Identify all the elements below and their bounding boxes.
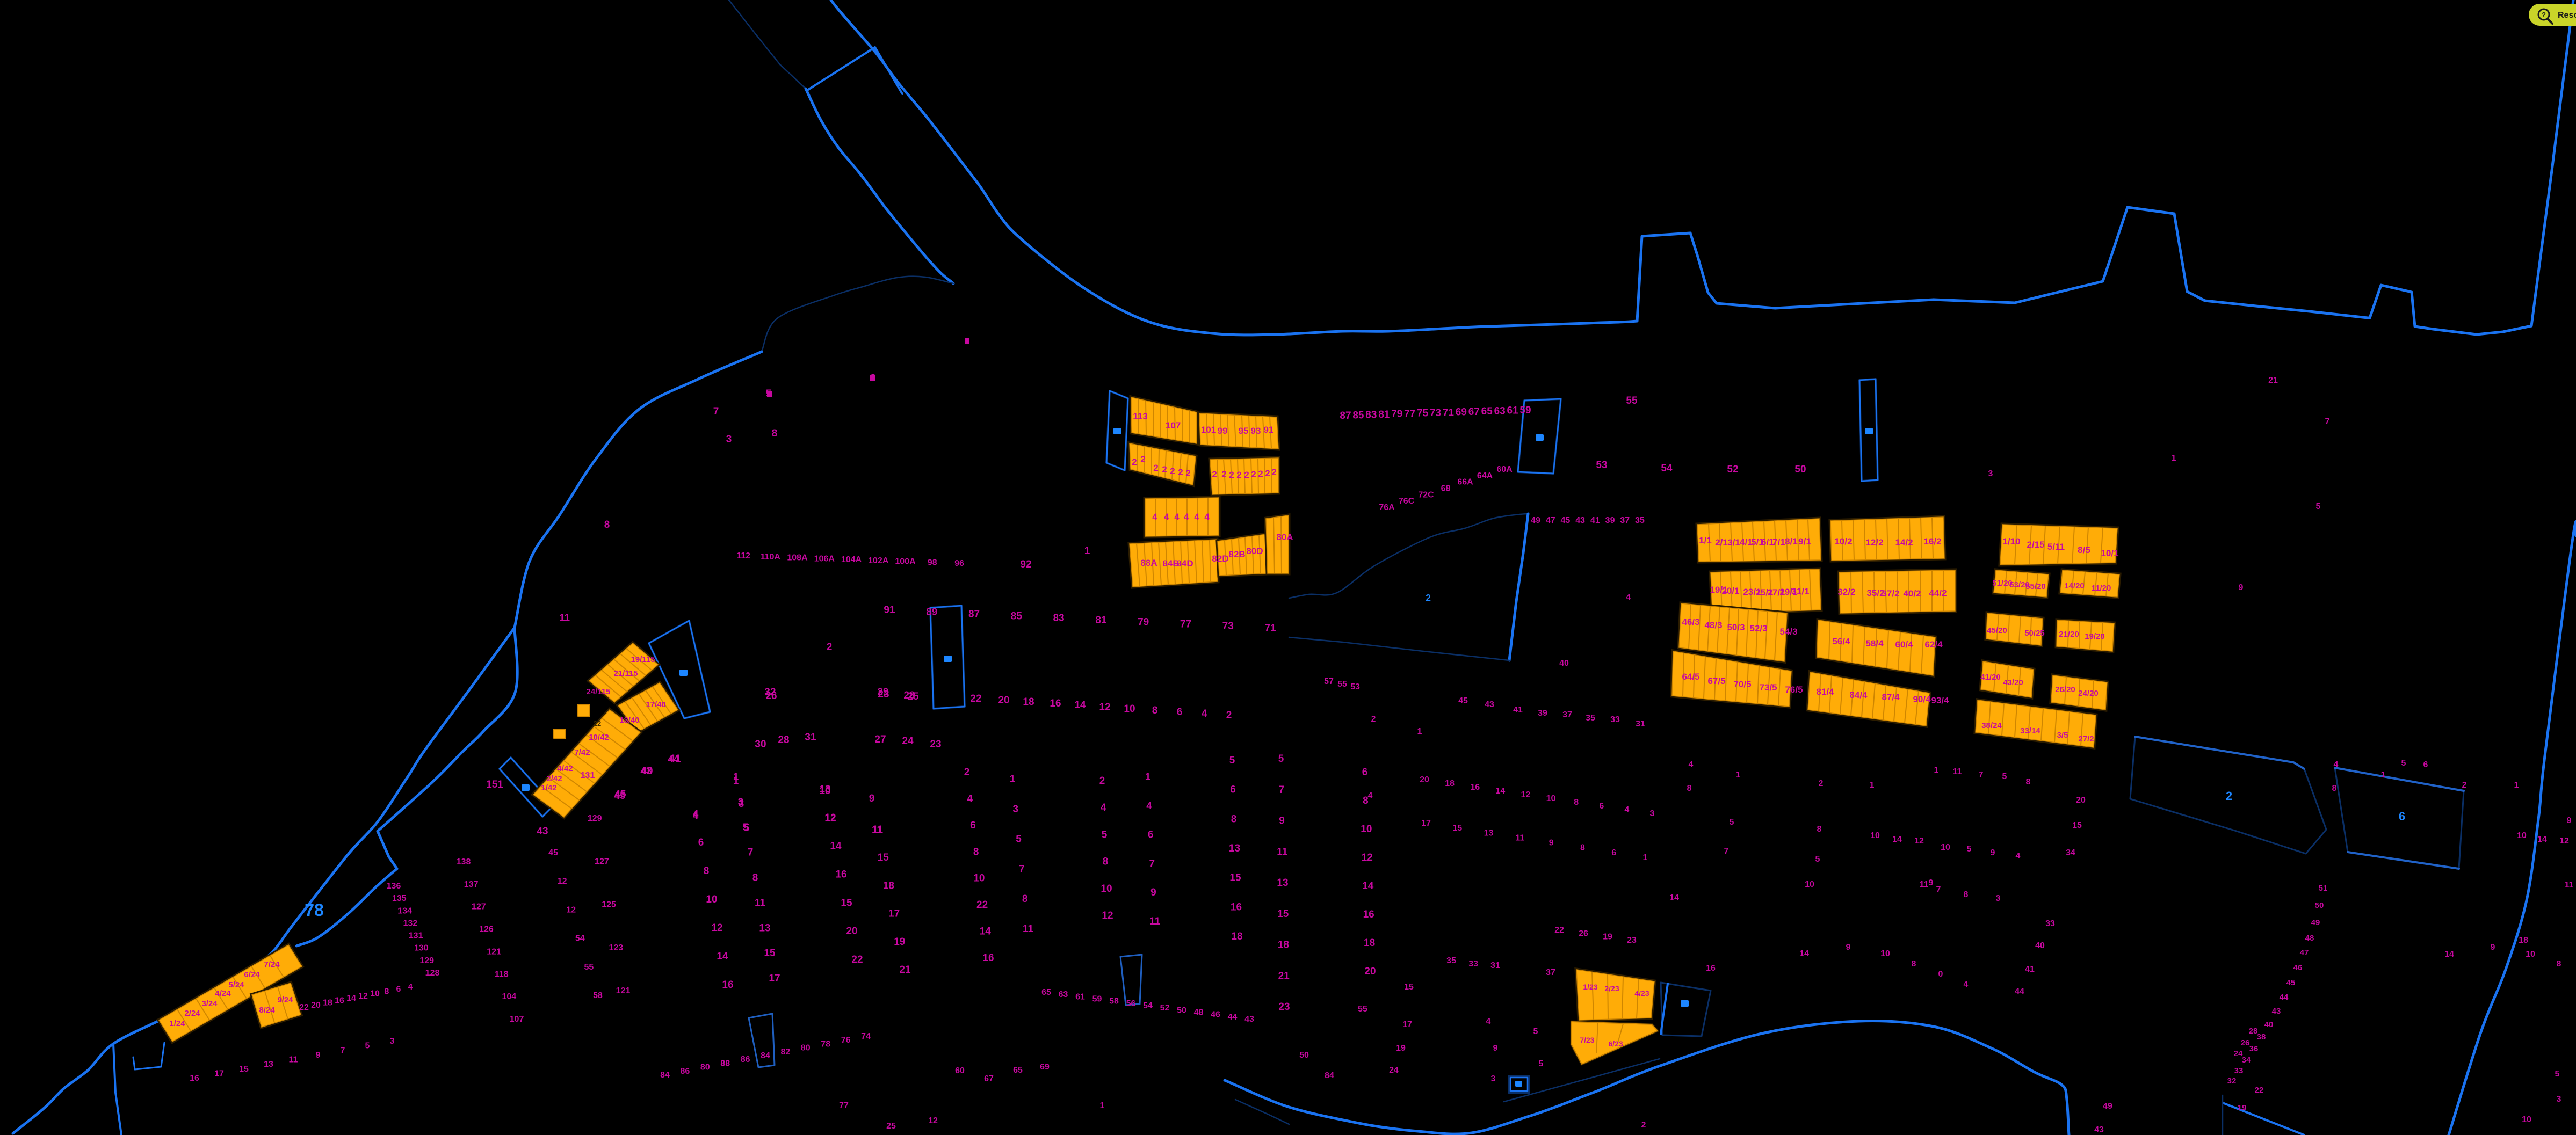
svg-text:9: 9 (2567, 816, 2572, 825)
svg-text:6: 6 (1148, 830, 1154, 841)
svg-text:4: 4 (1204, 512, 1210, 522)
svg-text:108A: 108A (787, 554, 808, 563)
svg-text:15: 15 (2072, 821, 2082, 830)
svg-text:6: 6 (1362, 767, 1368, 778)
svg-text:21/115: 21/115 (613, 669, 638, 678)
svg-text:5: 5 (2401, 759, 2406, 768)
svg-text:2: 2 (1099, 775, 1105, 787)
svg-text:6: 6 (1177, 707, 1183, 718)
svg-text:9: 9 (1929, 878, 1934, 887)
svg-text:15: 15 (1277, 908, 1289, 920)
svg-text:26: 26 (2241, 1038, 2250, 1047)
svg-text:32: 32 (2227, 1076, 2237, 1086)
svg-text:4: 4 (408, 983, 413, 992)
svg-text:31: 31 (1490, 961, 1500, 970)
svg-text:93/4: 93/4 (1931, 695, 1949, 705)
svg-text:6: 6 (396, 985, 401, 994)
svg-text:37: 37 (1620, 516, 1630, 525)
svg-text:68: 68 (1441, 484, 1451, 493)
svg-text:31: 31 (805, 732, 816, 743)
svg-text:5: 5 (2316, 502, 2321, 511)
svg-text:19: 19 (894, 936, 905, 948)
svg-text:8: 8 (2332, 784, 2337, 793)
svg-text:67/5: 67/5 (1707, 676, 1725, 686)
svg-text:13: 13 (1229, 843, 1240, 854)
svg-text:1: 1 (1417, 727, 1422, 736)
svg-text:7: 7 (1149, 858, 1155, 869)
svg-text:1: 1 (2172, 454, 2176, 463)
svg-text:4: 4 (1624, 805, 1629, 814)
svg-text:5: 5 (1229, 755, 1235, 766)
svg-text:88: 88 (720, 1059, 730, 1068)
svg-text:18: 18 (1445, 779, 1455, 788)
svg-text:12: 12 (1102, 910, 1113, 921)
svg-text:73/5: 73/5 (1759, 682, 1777, 693)
svg-text:83: 83 (1365, 410, 1377, 421)
svg-text:5: 5 (743, 822, 749, 833)
svg-text:17: 17 (888, 908, 900, 920)
svg-text:22: 22 (1554, 926, 1564, 935)
svg-text:11: 11 (289, 1056, 298, 1065)
svg-text:69: 69 (1456, 407, 1467, 418)
svg-text:75: 75 (1417, 408, 1429, 419)
svg-text:2: 2 (1185, 468, 1190, 478)
svg-text:10: 10 (370, 990, 380, 999)
svg-text:14: 14 (346, 994, 356, 1003)
svg-text:54: 54 (1143, 1001, 1153, 1010)
svg-text:67: 67 (1468, 406, 1480, 418)
svg-text:4/42: 4/42 (557, 764, 573, 773)
svg-text:7/1: 7/1 (1772, 537, 1785, 547)
svg-text:3: 3 (1650, 809, 1655, 818)
svg-text:8/5: 8/5 (2078, 545, 2090, 555)
svg-text:5: 5 (1539, 1059, 1544, 1068)
svg-text:14: 14 (1799, 949, 1809, 958)
svg-text:22: 22 (594, 719, 601, 727)
svg-text:51: 51 (2319, 884, 2328, 893)
svg-text:33: 33 (2045, 919, 2055, 928)
svg-text:26: 26 (765, 690, 777, 702)
svg-text:151: 151 (486, 779, 503, 790)
svg-text:46/3: 46/3 (1682, 617, 1699, 627)
svg-text:8: 8 (1152, 705, 1158, 716)
svg-text:73: 73 (1222, 621, 1234, 632)
svg-text:78: 78 (821, 1039, 830, 1049)
svg-text:4: 4 (1164, 512, 1169, 522)
svg-text:3/5: 3/5 (2057, 731, 2068, 740)
svg-text:4: 4 (1146, 801, 1152, 812)
svg-text:132: 132 (403, 919, 418, 928)
svg-text:2: 2 (1258, 469, 1263, 479)
svg-text:13: 13 (759, 922, 770, 934)
svg-text:12: 12 (824, 812, 836, 824)
svg-text:55/20: 55/20 (2025, 582, 2046, 591)
svg-text:8: 8 (772, 428, 778, 439)
svg-text:14: 14 (1669, 893, 1679, 903)
svg-text:2: 2 (1140, 454, 1145, 464)
svg-text:34: 34 (2066, 848, 2075, 857)
svg-text:45: 45 (1561, 516, 1571, 525)
svg-text:11: 11 (1023, 923, 1034, 935)
svg-text:7/24: 7/24 (264, 960, 280, 969)
svg-text:43: 43 (2272, 1007, 2281, 1016)
svg-text:31/1: 31/1 (1791, 586, 1809, 596)
svg-text:59: 59 (1519, 405, 1531, 416)
svg-text:1/24: 1/24 (169, 1019, 185, 1028)
svg-text:3: 3 (1996, 894, 2001, 903)
svg-text:55: 55 (584, 963, 594, 972)
svg-text:35: 35 (1635, 516, 1645, 525)
svg-text:54: 54 (575, 934, 585, 943)
svg-text:18: 18 (1023, 696, 1034, 708)
svg-text:2: 2 (1244, 470, 1249, 480)
svg-text:65: 65 (1481, 406, 1493, 417)
svg-text:1: 1 (1084, 545, 1090, 557)
svg-text:113: 113 (1133, 411, 1147, 421)
svg-text:16: 16 (835, 869, 846, 881)
svg-text:63: 63 (1059, 990, 1068, 999)
svg-text:85: 85 (1011, 610, 1023, 622)
svg-text:128: 128 (425, 969, 440, 978)
svg-text:47: 47 (1546, 516, 1555, 525)
svg-text:18: 18 (1231, 931, 1242, 942)
svg-text:112: 112 (736, 551, 750, 561)
svg-text:135: 135 (392, 894, 407, 903)
svg-text:22: 22 (851, 954, 863, 965)
svg-text:1: 1 (1934, 766, 1939, 775)
svg-text:6: 6 (1611, 848, 1616, 857)
svg-text:12: 12 (2559, 836, 2569, 846)
svg-text:50/25: 50/25 (2024, 629, 2045, 638)
svg-text:3: 3 (726, 434, 732, 445)
svg-text:10: 10 (1546, 794, 1556, 803)
svg-text:127: 127 (472, 903, 486, 912)
svg-text:46: 46 (2293, 963, 2303, 972)
svg-text:2: 2 (964, 767, 970, 778)
svg-text:5/24: 5/24 (228, 980, 244, 990)
svg-text:25: 25 (886, 1122, 896, 1131)
svg-text:3: 3 (1491, 1074, 1496, 1083)
svg-text:123: 123 (609, 943, 623, 952)
svg-text:137: 137 (464, 880, 479, 889)
svg-text:40: 40 (2035, 941, 2045, 950)
svg-text:14: 14 (2537, 835, 2547, 844)
svg-text:4: 4 (1202, 708, 1207, 719)
svg-text:2: 2 (1641, 1121, 1646, 1130)
svg-text:48: 48 (2305, 934, 2314, 943)
svg-text:16/2: 16/2 (1923, 536, 1941, 547)
svg-text:91: 91 (884, 605, 895, 616)
svg-text:15: 15 (878, 852, 889, 863)
svg-text:17/40: 17/40 (646, 700, 666, 709)
svg-text:71: 71 (1264, 623, 1276, 634)
svg-text:37: 37 (1546, 968, 1555, 977)
svg-text:17: 17 (1402, 1020, 1412, 1029)
svg-text:23: 23 (1627, 936, 1637, 945)
svg-text:45/20: 45/20 (1987, 626, 2007, 635)
svg-text:40: 40 (641, 766, 653, 777)
svg-text:98: 98 (928, 558, 937, 567)
svg-text:8: 8 (752, 872, 758, 884)
svg-text:101: 101 (1201, 425, 1216, 435)
svg-text:54/3: 54/3 (1779, 627, 1797, 637)
svg-text:15: 15 (239, 1065, 249, 1074)
svg-text:7: 7 (1724, 847, 1729, 856)
svg-text:4: 4 (1184, 512, 1189, 522)
svg-text:14: 14 (1892, 835, 1902, 844)
svg-text:39: 39 (1605, 516, 1615, 525)
svg-text:17: 17 (214, 1069, 224, 1078)
svg-text:86: 86 (681, 1067, 690, 1076)
svg-text:24: 24 (2234, 1049, 2243, 1058)
svg-text:6: 6 (698, 837, 704, 848)
svg-text:5: 5 (1016, 834, 1022, 845)
svg-text:8/1: 8/1 (1785, 536, 1798, 547)
svg-text:10: 10 (2522, 1115, 2531, 1124)
svg-text:48: 48 (1194, 1008, 1204, 1017)
svg-text:41: 41 (669, 753, 681, 765)
svg-text:53: 53 (1350, 682, 1360, 692)
svg-text:83: 83 (1053, 613, 1065, 624)
svg-text:2: 2 (1271, 467, 1276, 477)
svg-text:4: 4 (2334, 760, 2339, 769)
svg-text:2: 2 (1426, 593, 1431, 603)
svg-text:99: 99 (1218, 426, 1228, 436)
svg-text:2: 2 (1162, 464, 1167, 475)
svg-text:10: 10 (1870, 831, 1880, 840)
svg-text:16: 16 (190, 1074, 199, 1083)
svg-text:72C: 72C (1418, 490, 1434, 499)
svg-text:79: 79 (1138, 617, 1149, 628)
svg-text:5: 5 (1278, 753, 1284, 765)
svg-text:45: 45 (614, 790, 626, 802)
svg-text:16: 16 (982, 952, 994, 964)
svg-text:11: 11 (1515, 833, 1524, 842)
svg-text:28: 28 (778, 734, 789, 746)
svg-text:6/24: 6/24 (244, 970, 260, 979)
svg-text:55: 55 (1626, 395, 1638, 406)
svg-text:12: 12 (558, 877, 567, 886)
svg-text:81/4: 81/4 (1816, 687, 1834, 697)
svg-text:84/4: 84/4 (1849, 690, 1868, 700)
svg-text:79: 79 (1391, 409, 1402, 420)
svg-text:125: 125 (602, 900, 616, 910)
svg-text:84D: 84D (1176, 558, 1193, 569)
svg-text:16: 16 (1363, 909, 1374, 920)
svg-text:20: 20 (1364, 966, 1376, 977)
svg-text:55: 55 (1358, 1005, 1367, 1014)
svg-text:50: 50 (1794, 464, 1806, 475)
svg-text:1: 1 (2514, 781, 2519, 790)
svg-text:1/23: 1/23 (1583, 983, 1597, 991)
svg-text:4: 4 (1486, 1017, 1491, 1026)
svg-text:64/5: 64/5 (1682, 672, 1699, 682)
svg-text:26/20: 26/20 (2055, 685, 2075, 694)
svg-text:110A: 110A (761, 552, 781, 562)
svg-text:16: 16 (1470, 783, 1480, 792)
svg-text:106A: 106A (814, 554, 835, 563)
svg-text:4: 4 (2016, 852, 2021, 861)
svg-text:22: 22 (2255, 1086, 2264, 1095)
svg-text:130: 130 (414, 944, 429, 953)
svg-text:4: 4 (693, 809, 699, 820)
svg-text:58/4: 58/4 (1865, 638, 1884, 649)
svg-text:8: 8 (704, 865, 710, 877)
svg-text:9: 9 (869, 793, 875, 804)
svg-text:1: 1 (1736, 770, 1741, 780)
svg-text:8: 8 (1687, 784, 1692, 793)
svg-text:24: 24 (1389, 1066, 1399, 1075)
svg-text:45: 45 (1458, 696, 1468, 705)
svg-text:80D: 80D (1246, 546, 1263, 556)
svg-text:?: ? (2542, 11, 2546, 19)
svg-text:2: 2 (1212, 469, 1217, 479)
svg-text:5: 5 (1967, 845, 1972, 854)
svg-text:10: 10 (973, 873, 985, 884)
svg-text:33: 33 (1468, 959, 1478, 969)
svg-text:10: 10 (2526, 950, 2535, 959)
svg-text:40: 40 (1559, 659, 1569, 668)
svg-text:8: 8 (385, 987, 389, 996)
svg-text:10/1: 10/1 (2101, 548, 2118, 558)
svg-text:2: 2 (827, 642, 833, 653)
svg-text:67: 67 (984, 1074, 994, 1083)
svg-text:60A: 60A (1496, 465, 1513, 474)
svg-text:9: 9 (1846, 943, 1851, 952)
svg-text:77: 77 (1404, 408, 1415, 419)
svg-text:131: 131 (409, 932, 423, 941)
svg-text:3: 3 (390, 1037, 395, 1046)
svg-text:86: 86 (741, 1055, 750, 1064)
svg-text:58: 58 (1109, 997, 1119, 1006)
svg-text:107: 107 (510, 1015, 524, 1024)
svg-text:1: 1 (1100, 1101, 1105, 1110)
svg-text:52: 52 (1727, 464, 1738, 475)
svg-text:138: 138 (457, 857, 471, 867)
svg-text:61: 61 (1075, 992, 1085, 1001)
svg-text:1/42: 1/42 (541, 783, 556, 792)
svg-text:49: 49 (2311, 918, 2320, 927)
svg-text:14: 14 (2444, 950, 2454, 959)
svg-text:8: 8 (973, 846, 979, 857)
svg-text:26: 26 (1579, 929, 1588, 938)
svg-text:11: 11 (1920, 880, 1929, 889)
svg-text:2: 2 (1153, 463, 1158, 473)
svg-text:14/20: 14/20 (2064, 581, 2085, 591)
svg-text:10: 10 (1805, 880, 1814, 889)
svg-text:134: 134 (397, 906, 412, 915)
svg-text:11: 11 (1277, 846, 1288, 857)
svg-text:18: 18 (1364, 937, 1375, 949)
svg-text:7: 7 (1278, 784, 1284, 796)
svg-text:121: 121 (616, 986, 631, 995)
svg-text:4: 4 (1964, 980, 1969, 989)
svg-text:16: 16 (1050, 698, 1061, 709)
svg-text:95: 95 (1239, 426, 1249, 436)
svg-text:4: 4 (1152, 512, 1157, 522)
svg-text:70/5: 70/5 (1733, 679, 1751, 689)
svg-text:19: 19 (2238, 1103, 2247, 1112)
svg-text:19/115: 19/115 (631, 655, 655, 664)
svg-text:7/42: 7/42 (574, 748, 590, 757)
svg-text:2: 2 (1226, 710, 1232, 721)
svg-text:40/2: 40/2 (1903, 588, 1921, 599)
svg-text:37/2: 37/2 (1882, 588, 1899, 599)
svg-text:0: 0 (1938, 970, 1943, 979)
svg-text:2/23: 2/23 (1604, 984, 1619, 993)
svg-text:52/3: 52/3 (1749, 623, 1767, 634)
svg-text:1/10: 1/10 (2002, 536, 2020, 547)
svg-text:4/23: 4/23 (1634, 989, 1649, 998)
svg-text:7: 7 (341, 1046, 345, 1055)
svg-text:1: 1 (1870, 781, 1875, 790)
svg-text:9: 9 (316, 1051, 321, 1060)
svg-text:56/4: 56/4 (1832, 636, 1850, 646)
svg-text:19/20: 19/20 (2085, 632, 2105, 641)
svg-text:63: 63 (1494, 405, 1506, 417)
svg-text:35: 35 (1586, 714, 1595, 723)
svg-text:80: 80 (801, 1044, 811, 1053)
svg-text:12: 12 (566, 905, 576, 914)
svg-text:76/5: 76/5 (1785, 685, 1803, 695)
svg-text:81: 81 (1378, 409, 1390, 420)
svg-text:24/115: 24/115 (586, 687, 610, 696)
svg-text:37: 37 (1562, 710, 1572, 719)
svg-text:11: 11 (1149, 916, 1161, 927)
svg-text:16: 16 (335, 996, 344, 1005)
svg-text:33/14: 33/14 (2020, 726, 2040, 736)
svg-text:6: 6 (970, 820, 976, 831)
svg-text:10: 10 (2517, 831, 2527, 840)
svg-text:5: 5 (2002, 772, 2007, 781)
svg-text:18: 18 (323, 999, 332, 1008)
svg-text:2: 2 (1132, 457, 1137, 467)
svg-text:27/2: 27/2 (2078, 734, 2094, 744)
svg-text:5: 5 (1102, 829, 1108, 840)
svg-text:2/42: 2/42 (546, 774, 562, 783)
svg-text:4/24: 4/24 (215, 989, 231, 998)
svg-text:82D: 82D (1212, 554, 1228, 564)
svg-text:50: 50 (2315, 901, 2324, 910)
svg-text:21: 21 (2268, 376, 2278, 385)
svg-text:9: 9 (1150, 887, 1156, 898)
svg-text:136: 136 (387, 882, 401, 891)
svg-text:38: 38 (2257, 1032, 2266, 1042)
svg-text:2: 2 (1251, 469, 1256, 479)
svg-text:4: 4 (1174, 512, 1180, 522)
svg-text:49: 49 (2103, 1102, 2112, 1111)
svg-text:10/42: 10/42 (589, 733, 609, 742)
svg-text:104: 104 (502, 992, 517, 1001)
svg-text:102A: 102A (868, 556, 889, 565)
svg-text:93: 93 (1251, 426, 1261, 436)
svg-text:7: 7 (748, 847, 754, 858)
svg-text:23: 23 (930, 739, 941, 750)
svg-text:8: 8 (2026, 777, 2031, 787)
svg-text:44/2: 44/2 (1929, 588, 1947, 598)
svg-text:9: 9 (2491, 943, 2495, 952)
svg-text:43: 43 (1244, 1015, 1254, 1024)
svg-text:41: 41 (1590, 516, 1600, 525)
svg-text:44: 44 (2280, 993, 2289, 1002)
svg-text:61: 61 (1507, 405, 1519, 417)
svg-text:41/20: 41/20 (1980, 673, 2001, 682)
svg-text:8/24: 8/24 (259, 1006, 275, 1015)
svg-text:14: 14 (1495, 787, 1505, 796)
svg-text:12: 12 (1521, 790, 1531, 799)
svg-text:10: 10 (1124, 703, 1135, 715)
svg-text:7: 7 (2325, 417, 2330, 426)
